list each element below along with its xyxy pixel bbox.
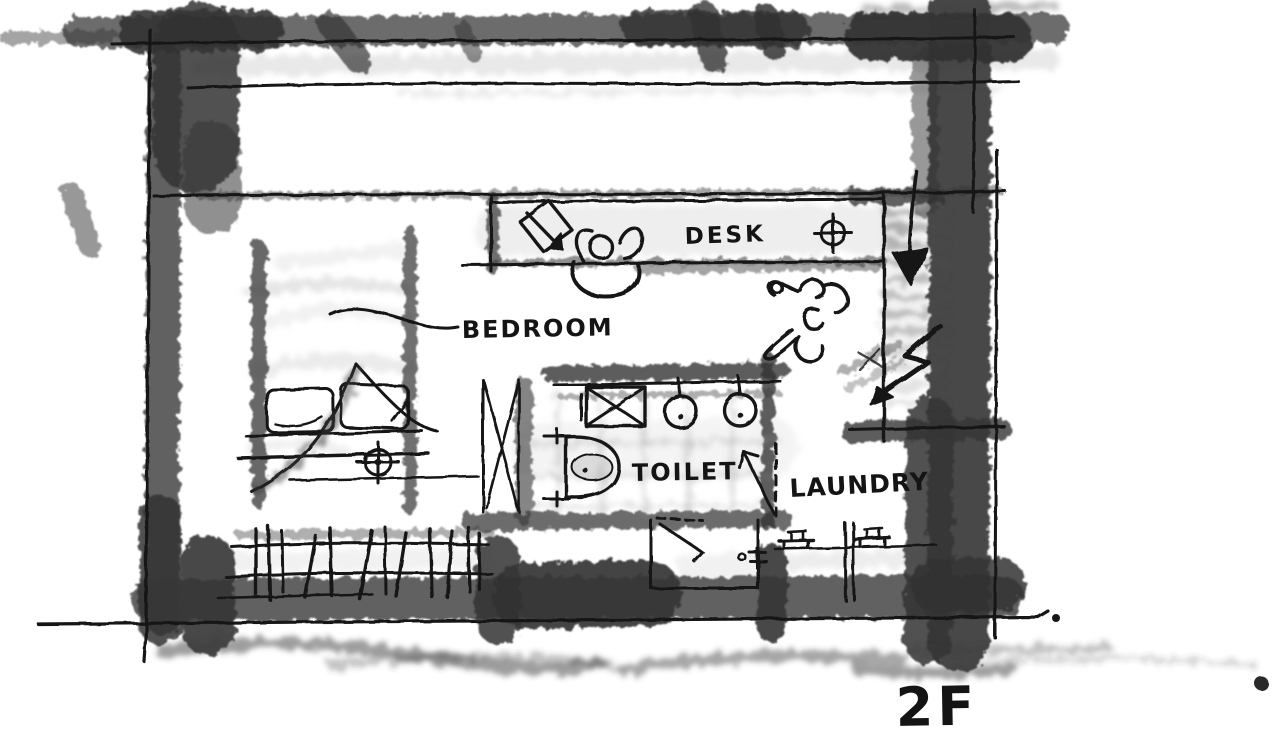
person-walking-icon	[765, 280, 848, 361]
toilet-label: TOILET	[632, 457, 738, 487]
desk-label: DESK	[684, 221, 766, 250]
floorplan-sketch: BEDROOM DESK TOILET LAUNDRY 2F	[0, 0, 1280, 733]
stray-dot	[1255, 677, 1269, 691]
sink-counter-line	[554, 381, 780, 385]
floor-label: 2F	[895, 675, 979, 733]
floorplan-sketch-canvas: BEDROOM DESK TOILET LAUNDRY 2F	[0, 0, 1280, 733]
bedroom-label: BEDROOM	[462, 313, 614, 344]
pen-end-dot	[1052, 614, 1060, 622]
